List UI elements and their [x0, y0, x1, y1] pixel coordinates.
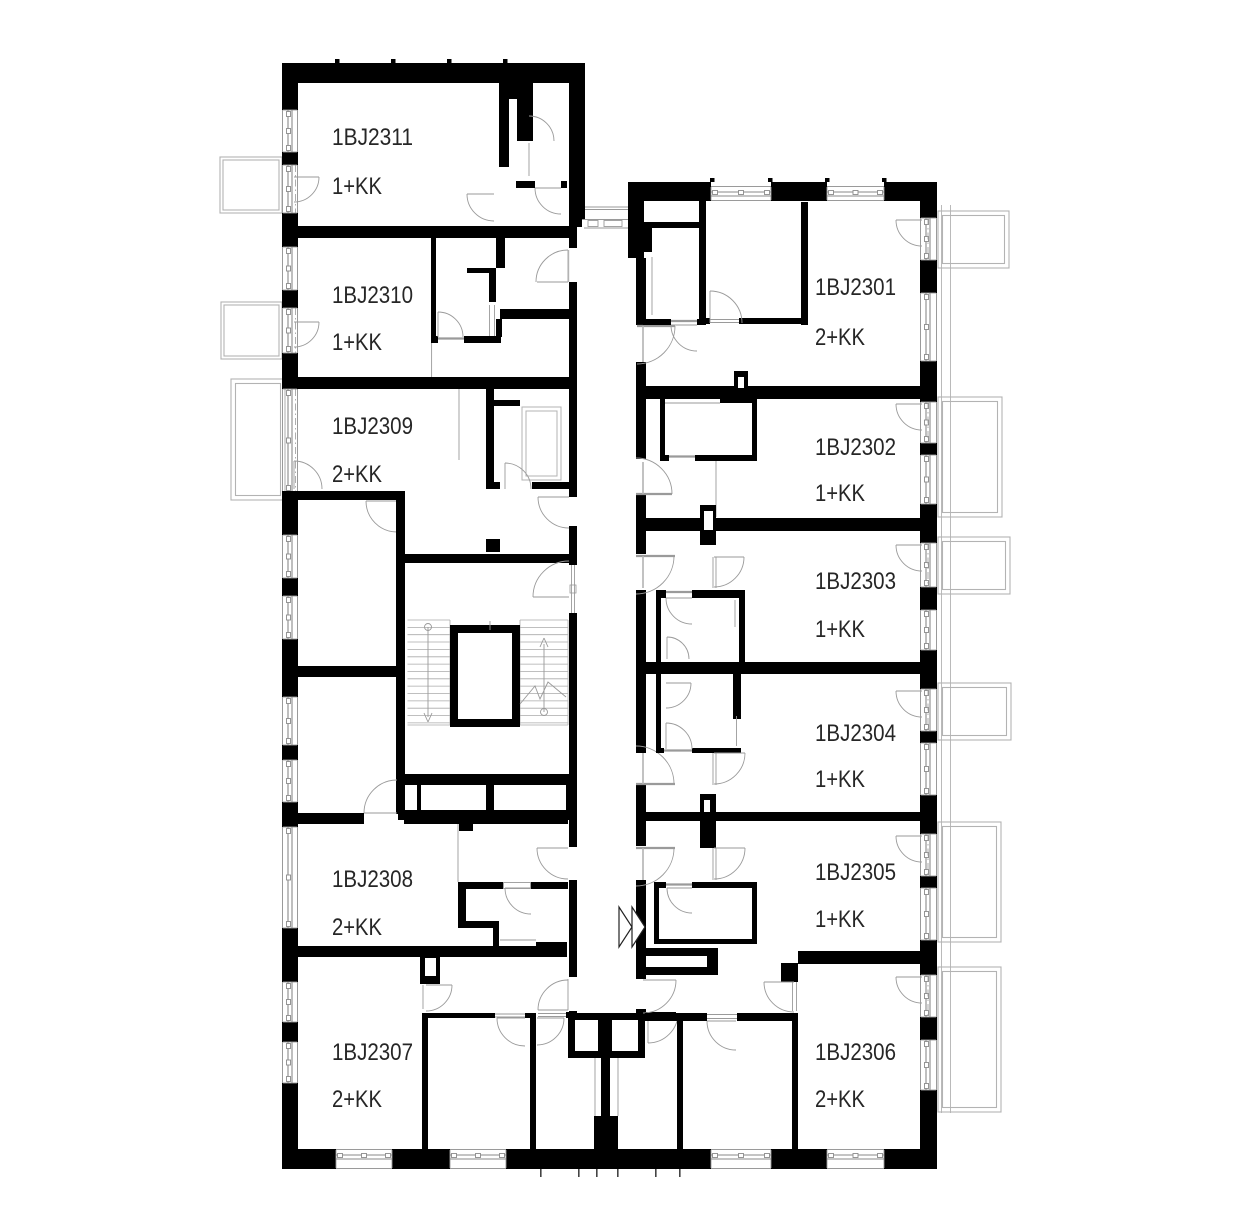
svg-text:1BJ2307: 1BJ2307: [332, 1039, 413, 1066]
svg-text:2+KK: 2+KK: [332, 461, 382, 488]
svg-text:1BJ2311: 1BJ2311: [332, 124, 413, 151]
svg-text:1+KK: 1+KK: [815, 906, 865, 933]
svg-text:1BJ2308: 1BJ2308: [332, 866, 413, 893]
svg-text:2+KK: 2+KK: [815, 1086, 865, 1113]
svg-text:1BJ2304: 1BJ2304: [815, 720, 896, 747]
svg-text:1BJ2301: 1BJ2301: [815, 274, 896, 301]
svg-text:1BJ2306: 1BJ2306: [815, 1039, 896, 1066]
svg-text:1+KK: 1+KK: [332, 173, 382, 200]
svg-text:1BJ2305: 1BJ2305: [815, 859, 896, 886]
svg-text:1BJ2309: 1BJ2309: [332, 413, 413, 440]
svg-text:1+KK: 1+KK: [815, 480, 865, 507]
svg-text:1+KK: 1+KK: [815, 616, 865, 643]
svg-text:1BJ2303: 1BJ2303: [815, 568, 896, 595]
svg-text:1BJ2302: 1BJ2302: [815, 434, 896, 461]
svg-text:2+KK: 2+KK: [815, 324, 865, 351]
svg-text:1+KK: 1+KK: [815, 766, 865, 793]
svg-text:1+KK: 1+KK: [332, 329, 382, 356]
svg-text:1BJ2310: 1BJ2310: [332, 282, 413, 309]
svg-text:2+KK: 2+KK: [332, 1086, 382, 1113]
svg-text:2+KK: 2+KK: [332, 914, 382, 941]
